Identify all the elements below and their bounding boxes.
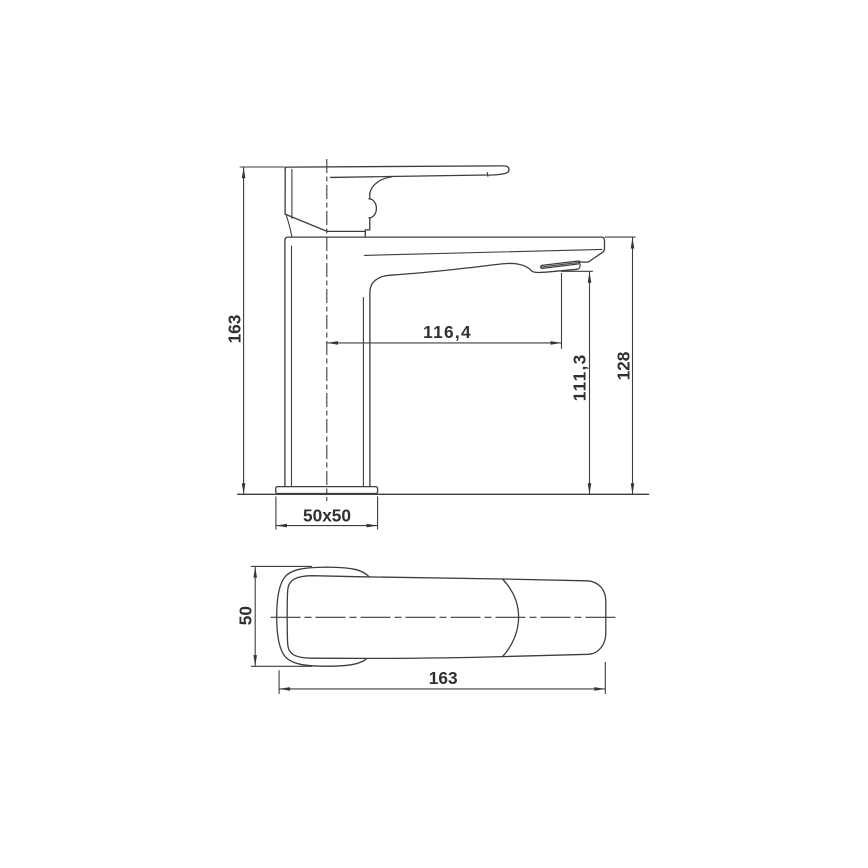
svg-text:128: 128 bbox=[613, 351, 633, 380]
svg-text:50x50: 50x50 bbox=[303, 505, 351, 525]
svg-text:163: 163 bbox=[224, 315, 244, 344]
svg-text:50: 50 bbox=[236, 606, 256, 625]
svg-text:116,4: 116,4 bbox=[423, 322, 471, 342]
svg-text:111,3: 111,3 bbox=[570, 355, 590, 402]
svg-text:163: 163 bbox=[429, 668, 458, 688]
